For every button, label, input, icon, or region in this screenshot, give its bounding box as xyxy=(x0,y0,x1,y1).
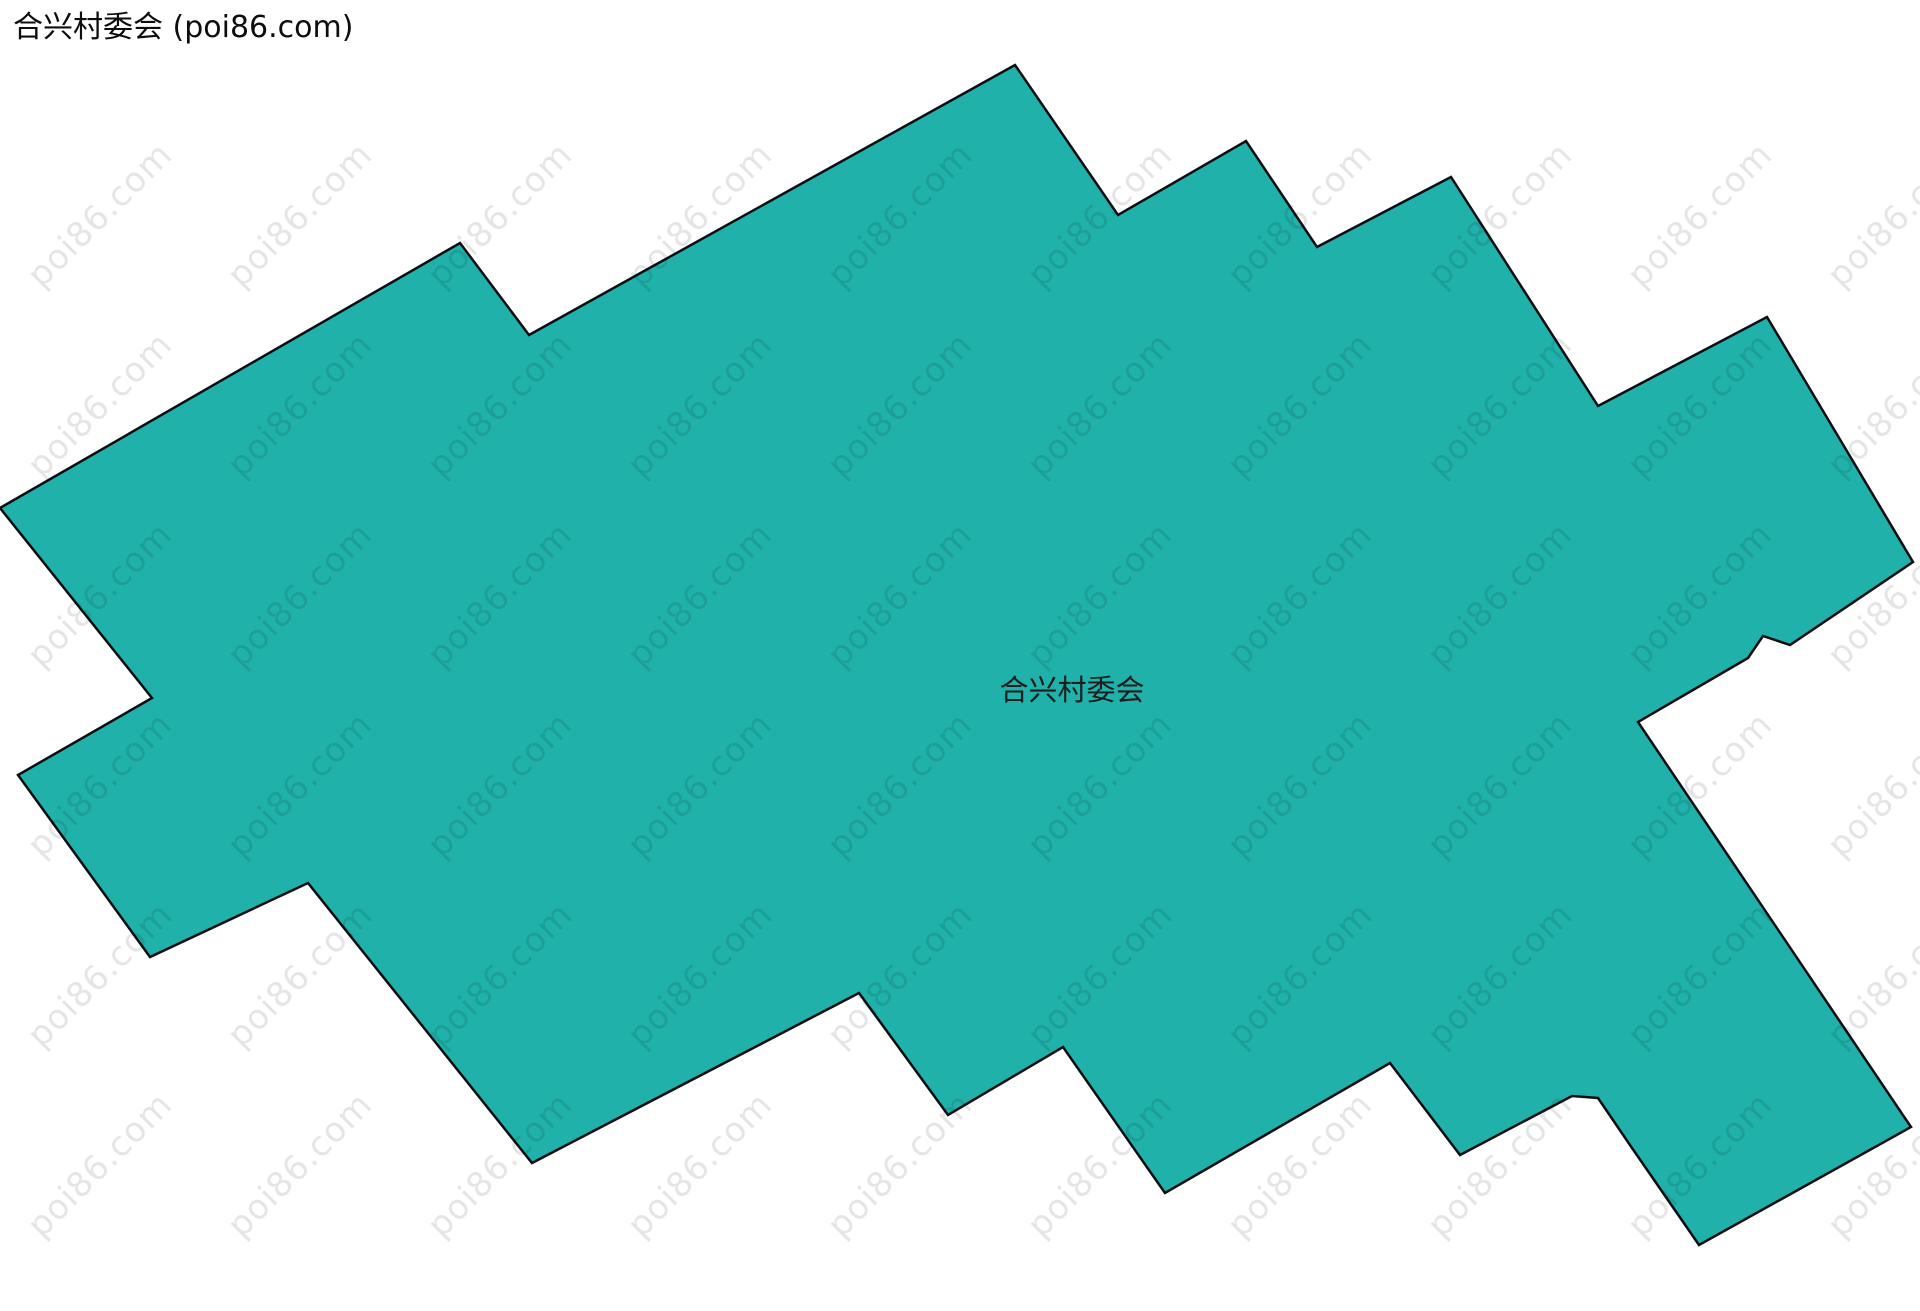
region-label: 合兴村委会 xyxy=(999,667,1144,709)
region-polygon xyxy=(0,65,1913,1245)
page-title: 合兴村委会 (poi86.com) xyxy=(13,10,353,46)
map-canvas: poi86.compoi86.compoi86.compoi86.compoi8… xyxy=(0,0,1920,1311)
region-map-svg xyxy=(0,0,1920,1311)
